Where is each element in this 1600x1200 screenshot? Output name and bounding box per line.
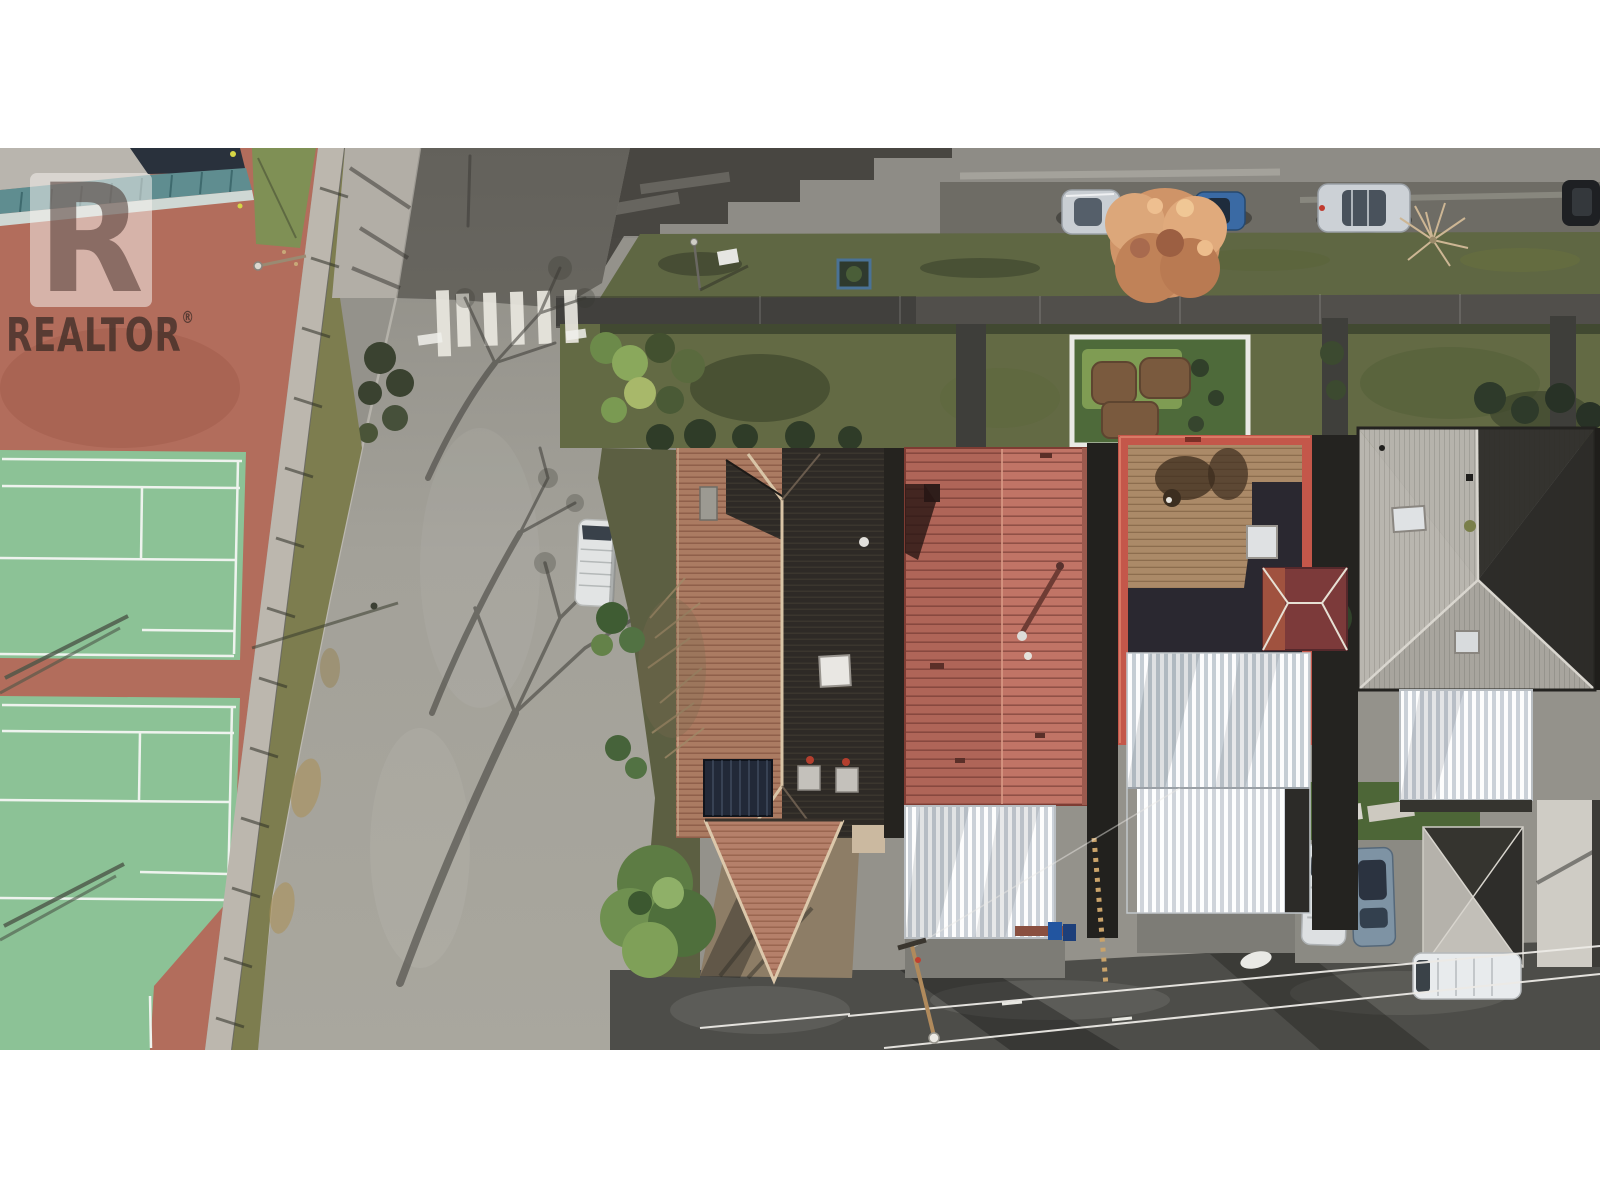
moss-patch: [1464, 520, 1476, 532]
carport-awning-3: [1400, 690, 1532, 812]
skylight-2: [798, 766, 820, 790]
autumn-tree: [1105, 188, 1227, 303]
parking-pad-2: [1137, 913, 1310, 953]
blue-bin-2: [1063, 924, 1076, 941]
aerial-photo: R REALTOR®: [0, 148, 1600, 1050]
fenced-garden-bed: [1072, 337, 1248, 445]
house-gap-3: [1312, 435, 1358, 930]
roof-vent-white: [859, 537, 869, 547]
parking-pad-1: [905, 936, 1065, 978]
skylight-gray-roof-1: [1392, 506, 1426, 532]
skylight-1: [819, 655, 851, 687]
garage-hip-roof: [1423, 827, 1523, 967]
house-gap-1: [884, 448, 905, 838]
tennis-court-upper: [0, 450, 246, 693]
blue-bin-1: [1048, 922, 1062, 940]
solar-panels: [704, 760, 772, 816]
screenshot-canvas: R REALTOR®: [0, 0, 1600, 1200]
aerial-photo-scene: [0, 148, 1600, 1050]
letterbox-top: [0, 0, 1600, 148]
carport-awning-2: [1127, 653, 1310, 913]
chimney-light: [700, 487, 717, 520]
garden-shed-roof: [852, 825, 885, 853]
neighbor-garage-roof: [1537, 800, 1600, 967]
skylight-flat-roof: [1247, 526, 1277, 558]
yellow-marker: [230, 151, 236, 157]
porch-hip-roof: [1263, 568, 1347, 650]
garden-path-1: [956, 324, 986, 448]
letterbox-bottom: [0, 1050, 1600, 1200]
skylight-gray-roof-2: [1455, 631, 1479, 653]
parked-suv-silver: [1318, 184, 1410, 232]
parked-car-black: [1562, 180, 1600, 226]
carport-awning-1: [905, 806, 1055, 938]
skylight-3: [836, 768, 858, 792]
